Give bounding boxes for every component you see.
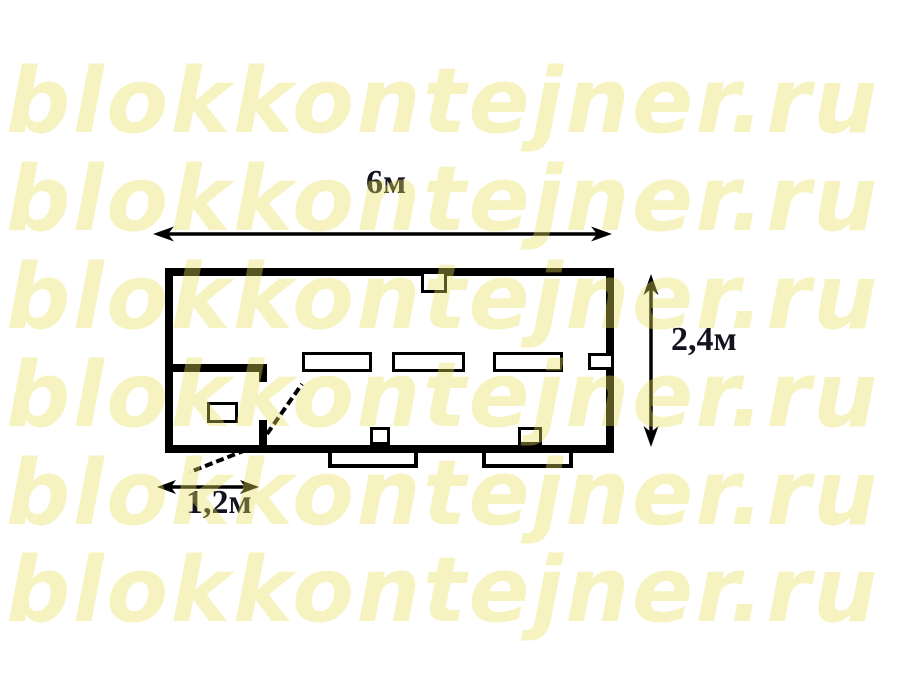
dimension-arrows-layer (0, 0, 900, 675)
entry-dimension-label: 1,2м (186, 486, 252, 520)
page: 6м 2,4м 1,2м blokkontejner.ru blokkontej… (0, 0, 900, 675)
width-dimension-label: 6м (366, 166, 406, 200)
interior-door-swing-line (267, 384, 302, 434)
height-dimension-label: 2,4м (671, 323, 737, 357)
width-dimension-arrow (153, 227, 612, 242)
height-dimension-arrow (644, 274, 659, 447)
entrance-door-swing-line (190, 450, 246, 472)
floor-plan: 6м 2,4м 1,2м (0, 0, 900, 675)
